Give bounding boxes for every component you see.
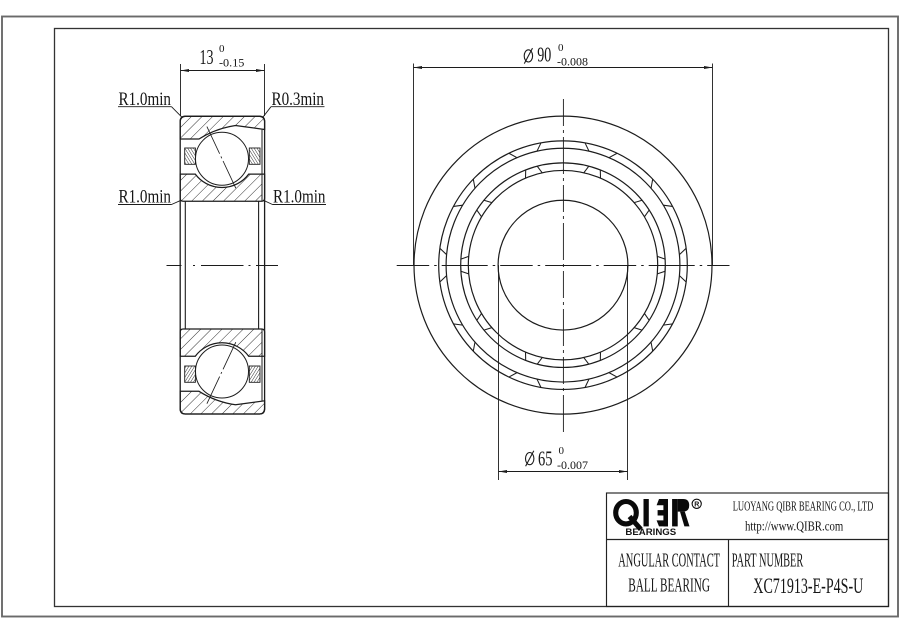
svg-text:BALL BEARING: BALL BEARING — [628, 575, 710, 597]
svg-text:0: 0 — [559, 445, 565, 457]
svg-text:0: 0 — [558, 42, 564, 54]
svg-text:XC71913-E-P4S-U: XC71913-E-P4S-U — [753, 573, 863, 598]
svg-text:90: 90 — [537, 42, 551, 66]
svg-text:65: 65 — [538, 447, 553, 471]
svg-text:-0.007: -0.007 — [557, 460, 588, 472]
svg-text:LUOYANG QIBR BEARING CO., LTD: LUOYANG QIBR BEARING CO., LTD — [733, 499, 874, 514]
svg-text:-0.15: -0.15 — [219, 57, 245, 69]
svg-text:-0.008: -0.008 — [557, 56, 588, 68]
svg-text:13: 13 — [200, 45, 214, 69]
svg-text:0: 0 — [219, 43, 225, 55]
svg-text:BEARINGS: BEARINGS — [625, 527, 676, 537]
svg-text:PART NUMBER: PART NUMBER — [732, 550, 804, 572]
svg-text:http://www.QIBR.com: http://www.QIBR.com — [745, 518, 844, 533]
svg-text:R: R — [694, 502, 699, 509]
svg-text:ANGULAR CONTACT: ANGULAR CONTACT — [618, 550, 720, 572]
